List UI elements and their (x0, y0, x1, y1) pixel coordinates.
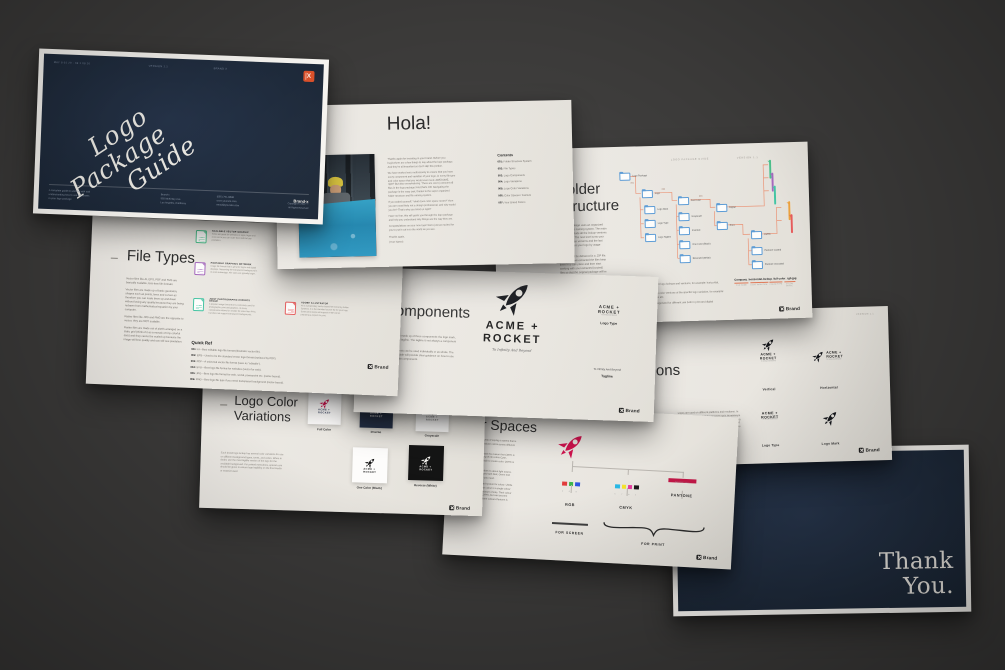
lcv-title-line2: Variations (234, 409, 298, 426)
for-screen-block: FOR SCREEN (539, 521, 600, 536)
file-icon-png (194, 262, 206, 275)
card-label: Full Color (307, 427, 340, 432)
file-icon-ai (285, 302, 297, 315)
rocket-icon (759, 336, 777, 354)
brand-logo-label: Brand (703, 555, 718, 561)
contents-item: 005: Logo Color Variations (498, 186, 568, 191)
rocket-icon (819, 408, 840, 430)
rocket-icon-red (553, 428, 590, 464)
slide-title: MAY 8 01 20 · 08 1 08 20 VERSION 1.1 BRA… (33, 48, 329, 224)
folder-icon (678, 197, 689, 205)
brace-icon (601, 521, 706, 540)
thank-you-line1: Thank (879, 549, 954, 575)
slide-color-spaces: Color Spaces Color space is a fancy way … (442, 403, 739, 570)
folder-node: Logo Type (645, 220, 669, 229)
folder-node: One Color (Black) (679, 240, 710, 249)
logo-type-callout: ACME + ROCKET To Infinity And Beyond Log… (579, 304, 640, 326)
connector-line (628, 469, 629, 475)
for-screen-label: FOR SCREEN (539, 529, 599, 536)
filename-label: FILE NAME (734, 285, 748, 289)
connector-label: 001 (631, 182, 634, 184)
brand-logo-label: Brand (626, 408, 640, 413)
card-label: Reverse (White) (408, 483, 443, 488)
folder-node: Logo Package (619, 172, 647, 181)
hola-paragraph: If you asked yourself, "what does color … (388, 199, 456, 212)
tagline-callout: To Infinity And Beyond Tagline (577, 366, 637, 379)
connector-line (572, 466, 573, 472)
filename-example-block: Company_horizontal-lockup_full-color_rgb… (734, 276, 802, 289)
file-types-paragraph: Raster files are made out of pixels arra… (123, 326, 184, 345)
folder-icon (645, 220, 656, 228)
hola-title: Hola! (387, 113, 432, 136)
folder-icon (717, 222, 728, 230)
card-label: Inverse (359, 429, 392, 434)
pantone-group: PANTONE 199 C PANTONE (660, 478, 705, 500)
acme-tagline: To Infinity And Beyond (761, 361, 776, 362)
contents-title: Contents (497, 152, 567, 157)
brand-x-icon (858, 447, 864, 453)
brand-logo: Brand (779, 305, 800, 311)
brand-logo-label: Brand (865, 447, 879, 452)
contents-item: 006: Color Spaces / Gamuts (498, 193, 568, 198)
folder-icon (678, 213, 689, 221)
connector-label: 002 (662, 189, 665, 191)
hola-paragraph: Have no fear, this will guide you throug… (389, 213, 457, 222)
footer-address: Brand-x 555 McKinley Ave Los Angeles, Ca… (160, 194, 186, 207)
folder-meta-left: LOGO PACKAGE GUIDE (671, 157, 709, 161)
filename-label: COLOR SPACE (784, 283, 795, 287)
cmyk-group: C Y M K CMYK (602, 475, 652, 511)
folder-node: Inverted (679, 227, 701, 236)
acme-wordmark: ACME + ROCKET (370, 413, 383, 419)
folder-icon (644, 206, 655, 214)
brand-x-mark-icon: X (303, 71, 314, 82)
lockup-label: Logo Mark (822, 441, 840, 445)
folder-node: Reversed (White) (680, 254, 711, 263)
folder-node: Grayscale (678, 213, 702, 222)
acme-tagline: To Infinity And Beyond (826, 359, 843, 360)
brand-logo-label: Brand (374, 364, 388, 370)
folder-icon (716, 204, 727, 212)
acme-tagline: To Infinity And Beyond (762, 419, 777, 420)
for-print-label: FOR PRINT (599, 540, 707, 550)
screen-rule (552, 522, 588, 525)
card-label: Grayscale (415, 433, 448, 438)
folder-icon (642, 190, 653, 198)
folder-node: Logo Mark (644, 206, 668, 215)
brand-x-icon (779, 306, 785, 312)
brand-x-icon (449, 505, 455, 511)
folder-node: Pantone Coated (751, 246, 781, 255)
title-dash (220, 404, 227, 405)
lockup-label: Logo Type (762, 443, 780, 447)
folder-icon (752, 261, 763, 269)
footer-copyright: Brand-x Copyright © 2022 ™ All Rights Re… (287, 198, 308, 211)
hola-paragraph: We have worked very meticulously to ensu… (388, 170, 457, 198)
card-reverse: ACME + ROCKET (408, 445, 444, 481)
components-big-logo: ACME + ROCKET To Infinity And Beyond (462, 277, 564, 355)
tagline-label: Tagline (577, 373, 637, 379)
file-types-paragraph: Raster files like JPG and PNG are the op… (124, 315, 184, 325)
acme-tagline: To Infinity And Beyond (492, 348, 531, 353)
folder-icon (679, 227, 690, 235)
folder-node: Digital (716, 204, 736, 213)
folder-icon (645, 234, 656, 242)
lockup-logo-type: ACME + ROCKET To Infinity And Beyond Log… (746, 405, 795, 448)
cmyk-label: CMYK (602, 504, 650, 511)
acme-tagline: To Infinity And Beyond (577, 366, 637, 372)
brand-logo: Brand (367, 363, 388, 369)
title-dash (111, 258, 118, 259)
lockup-label: Vertical (763, 387, 776, 391)
pantone-code: PANTONE 199 C (660, 482, 704, 485)
brand-logo: Brand (619, 407, 640, 413)
lockup-vertical: ACME + ROCKET To Infinity And Beyond Ver… (744, 337, 793, 392)
brand-x-icon (367, 363, 373, 369)
rgb-label: RGB (548, 502, 592, 508)
file-types-title: File Types (127, 247, 196, 267)
file-icon-jpg (193, 298, 205, 311)
folder-icon (679, 241, 690, 249)
footer-about: A complete guide to working with and und… (48, 189, 118, 203)
hola-paragraph: Congratulations on your new logo! We're … (389, 224, 457, 233)
hola-paragraph: (Your Name) (389, 239, 457, 244)
contents-item: 007: Your Brand Colors (498, 200, 568, 205)
brand-logo-label: Brand (786, 306, 800, 311)
lockup-logo-mark: Logo Mark (800, 403, 861, 447)
brand-logo: Brand (858, 447, 879, 453)
contents-item: 002: File Types (498, 166, 568, 171)
brand-x-icon (619, 407, 625, 413)
folder-tree-diagram: 001 002 003 Logo Package Logo Logo Mark … (619, 160, 802, 277)
acme-wordmark-bottom: ROCKET (483, 332, 542, 347)
folder-icon (751, 247, 762, 255)
brand-logo: Brand (449, 505, 470, 511)
contents-item: 004: Logo Variations (498, 179, 568, 184)
for-print-block: FOR PRINT (599, 521, 708, 550)
acme-wordmark: ACME + ROCKET (426, 417, 439, 423)
folder-node: Logo Tagline (645, 233, 671, 242)
rocket-icon (810, 348, 826, 365)
file-types-paragraph: Vector files like AI, EPS, PDF and SVG a… (126, 277, 186, 287)
file-type-item-ai: ADOBE ILLUSTRATOR AI is a proprietary ve… (285, 302, 350, 320)
brand-x-icon (696, 554, 702, 560)
folder-node: CMYK (751, 231, 771, 240)
folder-node: Print (717, 222, 735, 230)
filename-label: LOGO VARIATION (750, 284, 768, 289)
filename-label: COLOR TYPE (769, 284, 782, 288)
card-one-color: ACME + ROCKET (352, 447, 388, 483)
file-type-item-jpg: JOINT PHOTOGRAPHIC EXPERTS GROUP A popul… (193, 298, 258, 318)
rgb-group: R G B RGB (548, 472, 594, 508)
logo-type-label: Logo Type (579, 320, 639, 326)
hola-paragraph: Thanks again, (389, 234, 457, 239)
brand-logo: Brand (696, 554, 718, 561)
contents-item: 003: Logo Components (498, 173, 568, 178)
acme-wordmark: ACME + ROCKET (318, 409, 331, 415)
folder-icon (680, 255, 691, 263)
folder-node: Logo (642, 190, 660, 199)
connector-line (683, 472, 684, 478)
file-icon-svg (195, 230, 207, 243)
folder-icon (751, 231, 762, 239)
thank-you-line2: You. (879, 574, 954, 600)
contents-item: 001: Folder Structure System (498, 159, 568, 164)
folder-icon (619, 173, 630, 181)
brand-logo-label: Brand (456, 505, 470, 510)
rocket-icon (489, 274, 539, 323)
file-types-paragraph: Vector files are made up of basic geomet… (125, 288, 186, 315)
file-type-item-svg: SCALABLE VECTOR GRAPHIC SVGs are great f… (195, 230, 259, 246)
title-meta-date: MAY 8 01 20 · 08 1 08 20 (54, 61, 91, 65)
hola-paragraph: Thanks again for investing in your brand… (387, 156, 455, 169)
lcv-body: Each brand logo lockup has several color… (220, 451, 285, 475)
folder-node: Pantone Uncoated (752, 260, 784, 269)
folder-node: Full Color (678, 197, 701, 206)
title-canvas: MAY 8 01 20 · 08 1 08 20 VERSION 1.1 BRA… (38, 54, 324, 220)
lockup-horizontal: ACME + ROCKET To Infinity And Beyond Hor… (798, 335, 859, 391)
hola-contents: Contents 001: Folder Structure System 00… (497, 152, 568, 205)
mockup-scene: Thank You. VERSION 1.1 Variations Logos … (0, 0, 1005, 670)
card-label: One Color (Black) (352, 485, 387, 490)
lockup-label: Horizontal (820, 385, 838, 389)
folder-meta-right: VERSION 1.1 (737, 156, 758, 160)
file-type-item-png: PORTABLE GRAPHICS NETWORK Image file for… (194, 262, 258, 278)
footer-contact: (555) 751-9838 www.yoursite.com email@yo… (216, 196, 239, 208)
variations-meta-version: VERSION 1.1 (856, 313, 874, 315)
